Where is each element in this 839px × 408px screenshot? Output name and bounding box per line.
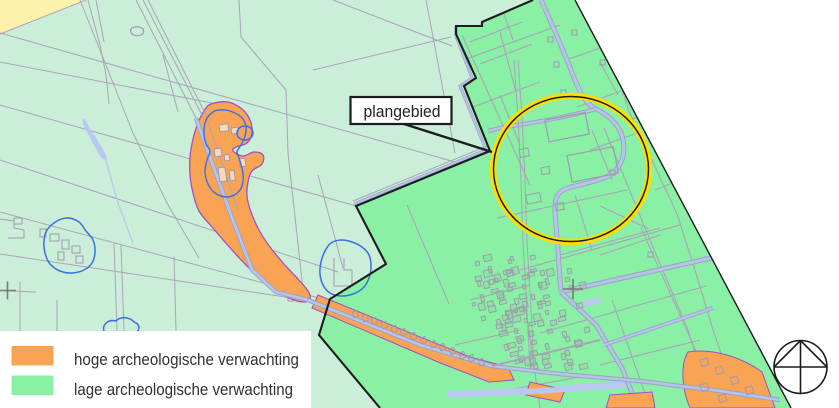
svg-text:lage archeologische verwachtin: lage archeologische verwachting	[74, 381, 293, 399]
svg-text:plangebied: plangebied	[364, 102, 441, 121]
svg-text:hoge archeologische verwachtin: hoge archeologische verwachting	[74, 351, 299, 369]
